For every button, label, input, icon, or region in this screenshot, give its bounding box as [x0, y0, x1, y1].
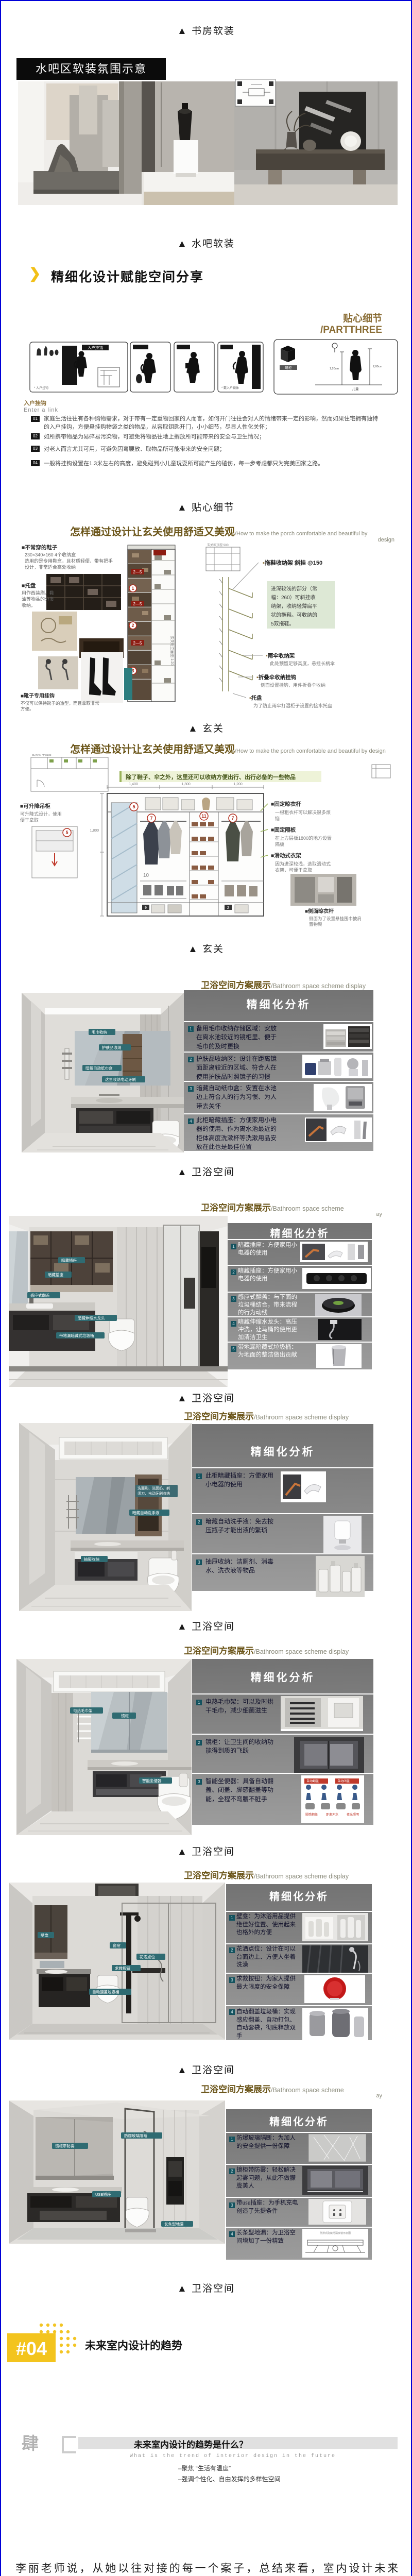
svg-text:收纳。: 收纳。 — [22, 602, 36, 608]
svg-text:7: 7 — [150, 816, 152, 821]
svg-text:脚感翻盖: 脚感翻盖 — [305, 1812, 318, 1817]
svg-text:侧面设置挂钩，用件折叠伞收纳: 侧面设置挂钩，用件折叠伞收纳 — [261, 682, 325, 688]
svg-text:恼: 恼 — [275, 816, 280, 821]
svg-text:5: 5 — [132, 804, 135, 809]
svg-text:■不常穿的鞋子: ■不常穿的鞋子 — [22, 544, 58, 551]
svg-text:一根粗衣杆可以解决很多烦: 一根粗衣杆可以解决很多烦 — [275, 809, 331, 815]
svg-text:窗帘: 窗帘 — [113, 1943, 121, 1948]
svg-text:1,200: 1,200 — [233, 783, 243, 786]
svg-text:2—5: 2—5 — [133, 641, 142, 646]
svg-text:求救按钮: 求救按钮 — [115, 1965, 130, 1971]
svg-text:带地漏暗藏式垃圾桶: 带地漏暗藏式垃圾桶 — [59, 1333, 94, 1338]
svg-text:镜柜带防雾: 镜柜带防雾 — [55, 2143, 75, 2148]
svg-text:壁龛: 壁龛 — [41, 1933, 48, 1938]
svg-text:2,00cm: 2,00cm — [373, 365, 382, 368]
svg-text:5: 5 — [65, 830, 68, 835]
svg-text:自动翻盖: 自动翻盖 — [306, 1779, 319, 1783]
svg-text:▪拖鞋收纳架 斜挂 @150: ▪拖鞋收纳架 斜挂 @150 — [263, 559, 322, 566]
svg-text:玄关柜 平面图: 玄关柜 平面图 — [32, 754, 51, 757]
svg-text:#04: #04 — [16, 2338, 47, 2359]
svg-text:护肤品收纳: 护肤品收纳 — [102, 1045, 122, 1050]
svg-text:5双拖鞋。: 5双拖鞋。 — [271, 620, 295, 627]
svg-text:自动翻盖垃圾桶: 自动翻盖垃圾桶 — [92, 1989, 119, 1994]
svg-text:1,20cm: 1,20cm — [330, 367, 339, 370]
svg-text:7: 7 — [231, 816, 234, 821]
svg-text:夜光照明: 夜光照明 — [347, 1812, 359, 1817]
svg-text:▪雨伞收纳架: ▪雨伞收纳架 — [266, 652, 295, 659]
svg-text:方便。: 方便。 — [21, 706, 34, 711]
svg-text:暗藏自动纸巾盒: 暗藏自动纸巾盒 — [85, 1065, 113, 1071]
svg-text:玄关柜立面图 1:20: 玄关柜立面图 1:20 — [170, 636, 175, 666]
svg-text:▪折叠伞收纳挂钩: ▪折叠伞收纳挂钩 — [256, 674, 296, 681]
svg-text:▪托盘: ▪托盘 — [249, 694, 262, 701]
svg-text:镜柜: 镜柜 — [121, 1713, 129, 1718]
svg-text:纳架，收纳轻薄扁平: 纳架，收纳轻薄扁平 — [271, 603, 317, 609]
svg-text:11: 11 — [201, 814, 207, 819]
svg-text:■可升降吊柜: ■可升降吊柜 — [20, 803, 50, 809]
svg-text:USB插座: USB插座 — [95, 2192, 111, 2197]
svg-text:2: 2 — [227, 906, 229, 910]
svg-text:可升降式设计，使用: 可升降式设计，使用 — [20, 811, 62, 817]
svg-text:■侧面晾衣杆: ■侧面晾衣杆 — [305, 908, 334, 914]
svg-text:长条型地漏: 长条型地漏 — [164, 2222, 184, 2227]
svg-text:鞋柜: 鞋柜 — [285, 365, 293, 370]
svg-text:洗面刷、洗面奶、剃: 洗面刷、洗面奶、剃 — [138, 1486, 170, 1490]
svg-text:■滑动式衣架: ■滑动式衣架 — [271, 852, 301, 859]
svg-text:1,300: 1,300 — [181, 783, 191, 786]
svg-text:除了鞋子、伞之外，这里还可以收纳方便出行、出行必备的一些物品: 除了鞋子、伞之外，这里还可以收纳方便出行、出行必备的一些物品 — [126, 773, 296, 781]
svg-text:■固定晾衣杆: ■固定晾衣杆 — [271, 801, 301, 807]
svg-text:设计，非常适合高处收纳: 设计，非常适合高处收纳 — [25, 564, 76, 570]
svg-text:2—5: 2—5 — [133, 602, 142, 606]
svg-text:儿童: 儿童 — [352, 386, 359, 391]
svg-text:暗藏伸缩水龙头: 暗藏伸缩水龙头 — [78, 1315, 105, 1320]
svg-text:10: 10 — [143, 873, 149, 878]
svg-text:入户挂钩: 入户挂钩 — [88, 345, 103, 350]
svg-text:即离冲水: 即离冲水 — [326, 1812, 338, 1817]
svg-text:此处预留足够高度，悬挂长柄伞: 此处预留足够高度，悬挂长柄伞 — [270, 660, 335, 666]
svg-text:9: 9 — [145, 906, 147, 910]
svg-text:幅：260）可斜挂收: 幅：260）可斜挂收 — [271, 594, 316, 601]
svg-text:选用的是专用鞋盒，且材质轻便、带有把手: 选用的是专用鞋盒，且材质轻便、带有把手 — [25, 558, 113, 564]
svg-text:暗藏插座: 暗藏插座 — [61, 1258, 77, 1263]
svg-text:为了防止雨伞打湿柜子设置的接水托盘: 为了防止雨伞打湿柜子设置的接水托盘 — [253, 703, 332, 708]
svg-text:进深较浅的部分（常: 进深较浅的部分（常 — [271, 585, 317, 592]
svg-text:230×340×160 4个收纳盒: 230×340×160 4个收纳盒 — [25, 552, 76, 557]
svg-text:■靴子专用挂钩: ■靴子专用挂钩 — [21, 692, 55, 699]
svg-text:这里收纳电动牙刷: 这里收纳电动牙刷 — [105, 1077, 136, 1082]
svg-text:因为进深较浅，选取滑动式: 因为进深较浅，选取滑动式 — [275, 861, 331, 867]
svg-text:防爆玻璃隔断: 防爆玻璃隔断 — [124, 2133, 147, 2138]
svg-text:暗藏自动洗手液: 暗藏自动洗手液 — [132, 1510, 160, 1515]
svg-text:侧排式隐藏地漏安装示意图: 侧排式隐藏地漏安装示意图 — [320, 2231, 351, 2235]
svg-text:用作西装刷、鞋: 用作西装刷、鞋 — [22, 590, 54, 596]
svg-text:* 戴入户锁体: * 戴入户锁体 — [221, 386, 239, 390]
svg-text:2: 2 — [131, 623, 134, 628]
svg-text:暗藏插座: 暗藏插座 — [48, 1272, 63, 1277]
svg-text:置物架: 置物架 — [309, 922, 322, 927]
svg-text:衣架，可便于拿取: 衣架，可便于拿取 — [275, 867, 312, 873]
svg-text:在上方层板1800的地方设置: 在上方层板1800的地方设置 — [275, 835, 332, 841]
svg-text:2—5: 2—5 — [133, 570, 142, 574]
svg-text:1,400: 1,400 — [129, 783, 138, 786]
svg-text:* 入户挂钩: * 入户挂钩 — [34, 386, 48, 390]
svg-text:自动闭盖: 自动闭盖 — [337, 1779, 350, 1783]
svg-text:花洒点位: 花洒点位 — [140, 1954, 155, 1959]
svg-text:■固定隔板: ■固定隔板 — [271, 826, 296, 833]
svg-text:■托盘: ■托盘 — [22, 582, 36, 589]
svg-text:须刀、电动牙刷收纳: 须刀、电动牙刷收纳 — [138, 1491, 170, 1496]
svg-text:1,800: 1,800 — [90, 829, 99, 833]
svg-text:电热毛巾架: 电热毛巾架 — [73, 1708, 93, 1713]
svg-text:玄关柜顶视 900: 玄关柜顶视 900 — [207, 543, 229, 547]
svg-text:便于拿取: 便于拿取 — [20, 817, 39, 823]
svg-text:1: 1 — [131, 586, 134, 591]
svg-text:抽屉收纳: 抽屉收纳 — [84, 1556, 99, 1562]
svg-text:状的拖鞋。可收纳的: 状的拖鞋。可收纳的 — [271, 612, 317, 618]
svg-text:不仅可以保持靴子的造型，而且拿取非常: 不仅可以保持靴子的造型，而且拿取非常 — [21, 701, 99, 706]
svg-text:油等物品的分类: 油等物品的分类 — [22, 596, 54, 602]
svg-text:毛巾收纳: 毛巾收纳 — [92, 1029, 107, 1035]
svg-text:智能坐便器: 智能坐便器 — [142, 1778, 162, 1783]
svg-text:侧面为了设置悬挂围巾披肩: 侧面为了设置悬挂围巾披肩 — [309, 916, 362, 921]
svg-text:隔板: 隔板 — [275, 841, 284, 847]
svg-text:感应式翻盖: 感应式翻盖 — [30, 1293, 50, 1298]
